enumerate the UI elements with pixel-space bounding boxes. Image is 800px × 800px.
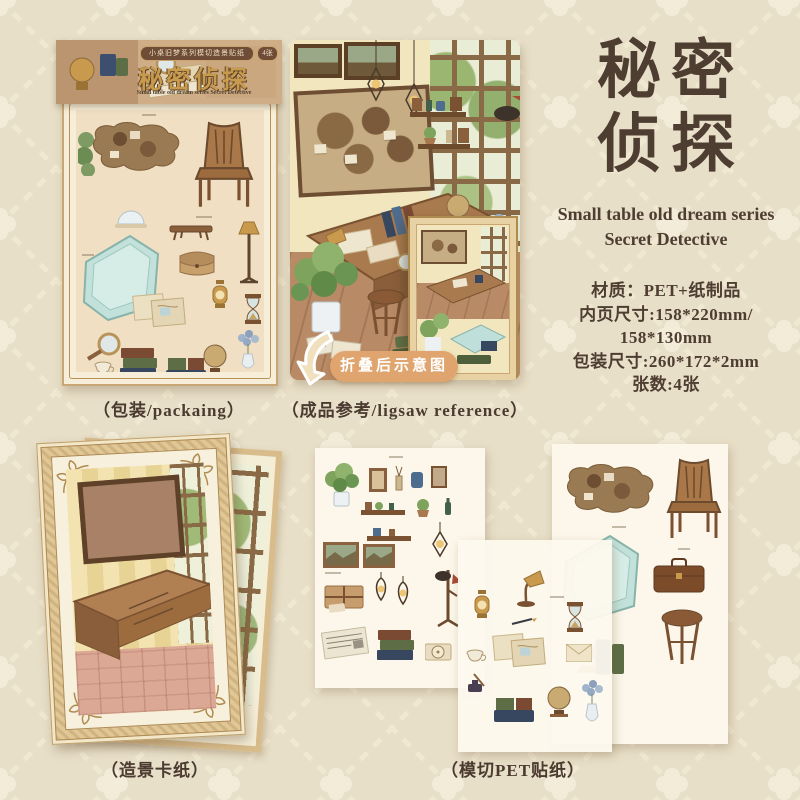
reference-caption: （成品参考/ligsaw reference） [274, 396, 536, 421]
item-label-placeholder [82, 254, 94, 256]
package-panel: 小桌旧梦系列模切造景贴纸 4张 秘密侦探 Small table old dre… [56, 40, 282, 386]
cloche-icon [114, 206, 148, 230]
fold-badge: 折叠后示意图 [330, 351, 458, 382]
card-wall-board [77, 475, 185, 565]
shelf-items-icon [410, 92, 470, 112]
item-label-placeholder [196, 216, 212, 218]
card-caption: （造景卡纸） [50, 756, 260, 781]
hourglass-icon [244, 294, 262, 324]
hat-icon [494, 106, 520, 121]
item-label-placeholder [678, 548, 690, 550]
pinned-paper [345, 154, 357, 164]
package-subtitle: Small table old dream series Secret Dete… [114, 90, 274, 96]
sticker-flower-vase-icon [578, 678, 606, 730]
bench-icon [168, 222, 214, 242]
sticker-potplant-icon [413, 498, 433, 518]
sticker-pen-icon [510, 616, 538, 626]
item-label-placeholder [389, 456, 403, 458]
sticker-shelf-icon [361, 500, 405, 516]
spec-sheet-count: 张数:4张 [540, 373, 792, 397]
product-title-line1: 秘密 [540, 34, 792, 108]
sticker-map-collage-icon [562, 460, 662, 522]
sticker-sheet-3 [458, 540, 612, 752]
sticker-newspaper-icon [321, 626, 369, 662]
sticker-cage-lamp-icon [395, 576, 411, 608]
card-room-scene [66, 463, 217, 716]
product-info-panel: 秘密 侦探 Small table old dream series Secre… [540, 34, 792, 397]
package-caption: （包装/packaing） [56, 396, 282, 421]
sticker-stool-icon [658, 608, 706, 666]
series-pill: 小桌旧梦系列模切造景贴纸 [140, 46, 254, 61]
sticker-jar-icon [411, 472, 423, 488]
package-sheet-items [76, 110, 264, 372]
spec-material: 材质：PET+纸制品 [540, 279, 792, 303]
sticker-plant-icon [323, 462, 359, 508]
item-label-placeholder [550, 596, 564, 598]
lantern-icon [208, 278, 232, 312]
product-subtitle-line1: Small table old dream series [540, 202, 792, 226]
sticker-maps-icon [492, 630, 548, 670]
sticker-chair-icon [666, 456, 722, 544]
spec-package-size: 包装尺寸:260*172*2mm [540, 350, 792, 374]
sticker-diffuser-icon [393, 464, 405, 492]
chair-icon [194, 118, 254, 214]
teacup-icon [94, 360, 116, 372]
product-title-line2: 侦探 [540, 108, 792, 182]
sticker-shelf-icon [367, 526, 411, 542]
sticker-lantern-icon [470, 588, 494, 624]
package-header: 小桌旧梦系列模切造景贴纸 4张 秘密侦探 Small table old dre… [56, 40, 282, 104]
spec-page-size: 内页尺寸:158*220mm/ [540, 303, 792, 327]
sticker-pocketwatch-icon [425, 640, 453, 662]
item-label-placeholder [612, 526, 626, 528]
book-stack-icon [118, 344, 160, 372]
sticker-letter-bundle-icon [323, 580, 365, 614]
flower-vase-icon [234, 328, 262, 372]
stickers-caption: （模切PET贴纸） [408, 756, 618, 781]
sticker-globe-icon [544, 684, 574, 724]
product-subtitle-line2: Secret Detective [540, 227, 792, 251]
maps-papers-icon [132, 290, 188, 330]
sticker-briefcase-icon [652, 556, 706, 596]
sticker-photo-icon [431, 466, 447, 488]
painting-icon [294, 44, 342, 78]
sticker-cage-lamp-icon [373, 572, 389, 604]
floor-lamp-icon [234, 220, 264, 286]
shelf-plant-icon [418, 126, 474, 144]
pennant-icon [512, 96, 520, 105]
item-label-placeholder [142, 114, 156, 116]
sticker-hourglass-icon [566, 602, 584, 632]
sticker-book-stack-icon [375, 626, 417, 664]
sticker-teacup-icon [466, 648, 488, 664]
wall-shelf [418, 144, 470, 149]
card-desk-icon [70, 550, 216, 677]
product-showcase: 小桌旧梦系列模切造景贴纸 4张 秘密侦探 Small table old dre… [0, 0, 800, 800]
sticker-desklamp-icon [514, 562, 548, 608]
map-collage-icon [88, 118, 188, 180]
sticker-envelope-icon [566, 644, 592, 662]
product-specs: 材质：PET+纸制品 内页尺寸:158*220mm/ 158*130mm 包装尺… [540, 279, 792, 397]
sticker-frame-icon [369, 468, 387, 492]
sticker-painting-icon [323, 542, 359, 568]
pinned-paper [314, 144, 326, 154]
inset-desk-icon [423, 259, 507, 305]
series-pill-label: 小桌旧梦系列模切造景贴纸 [149, 49, 245, 57]
globe-icon [200, 342, 230, 372]
satchel-icon [176, 246, 218, 276]
sticker-painting-icon [363, 544, 395, 568]
scene-card-front [36, 433, 246, 745]
package-sticker-sheet [62, 96, 278, 386]
wall-shelf [410, 112, 466, 117]
sticker-books-row-icon [492, 688, 538, 728]
spec-page-size-2: 158*130mm [540, 326, 792, 350]
sticker-pendant-icon [431, 522, 449, 558]
sticker-bottle-icon [443, 496, 453, 516]
item-label-placeholder [325, 572, 341, 574]
sheet-count-badge: 4张 [257, 46, 278, 61]
sticker-inkpot-icon [466, 672, 486, 694]
